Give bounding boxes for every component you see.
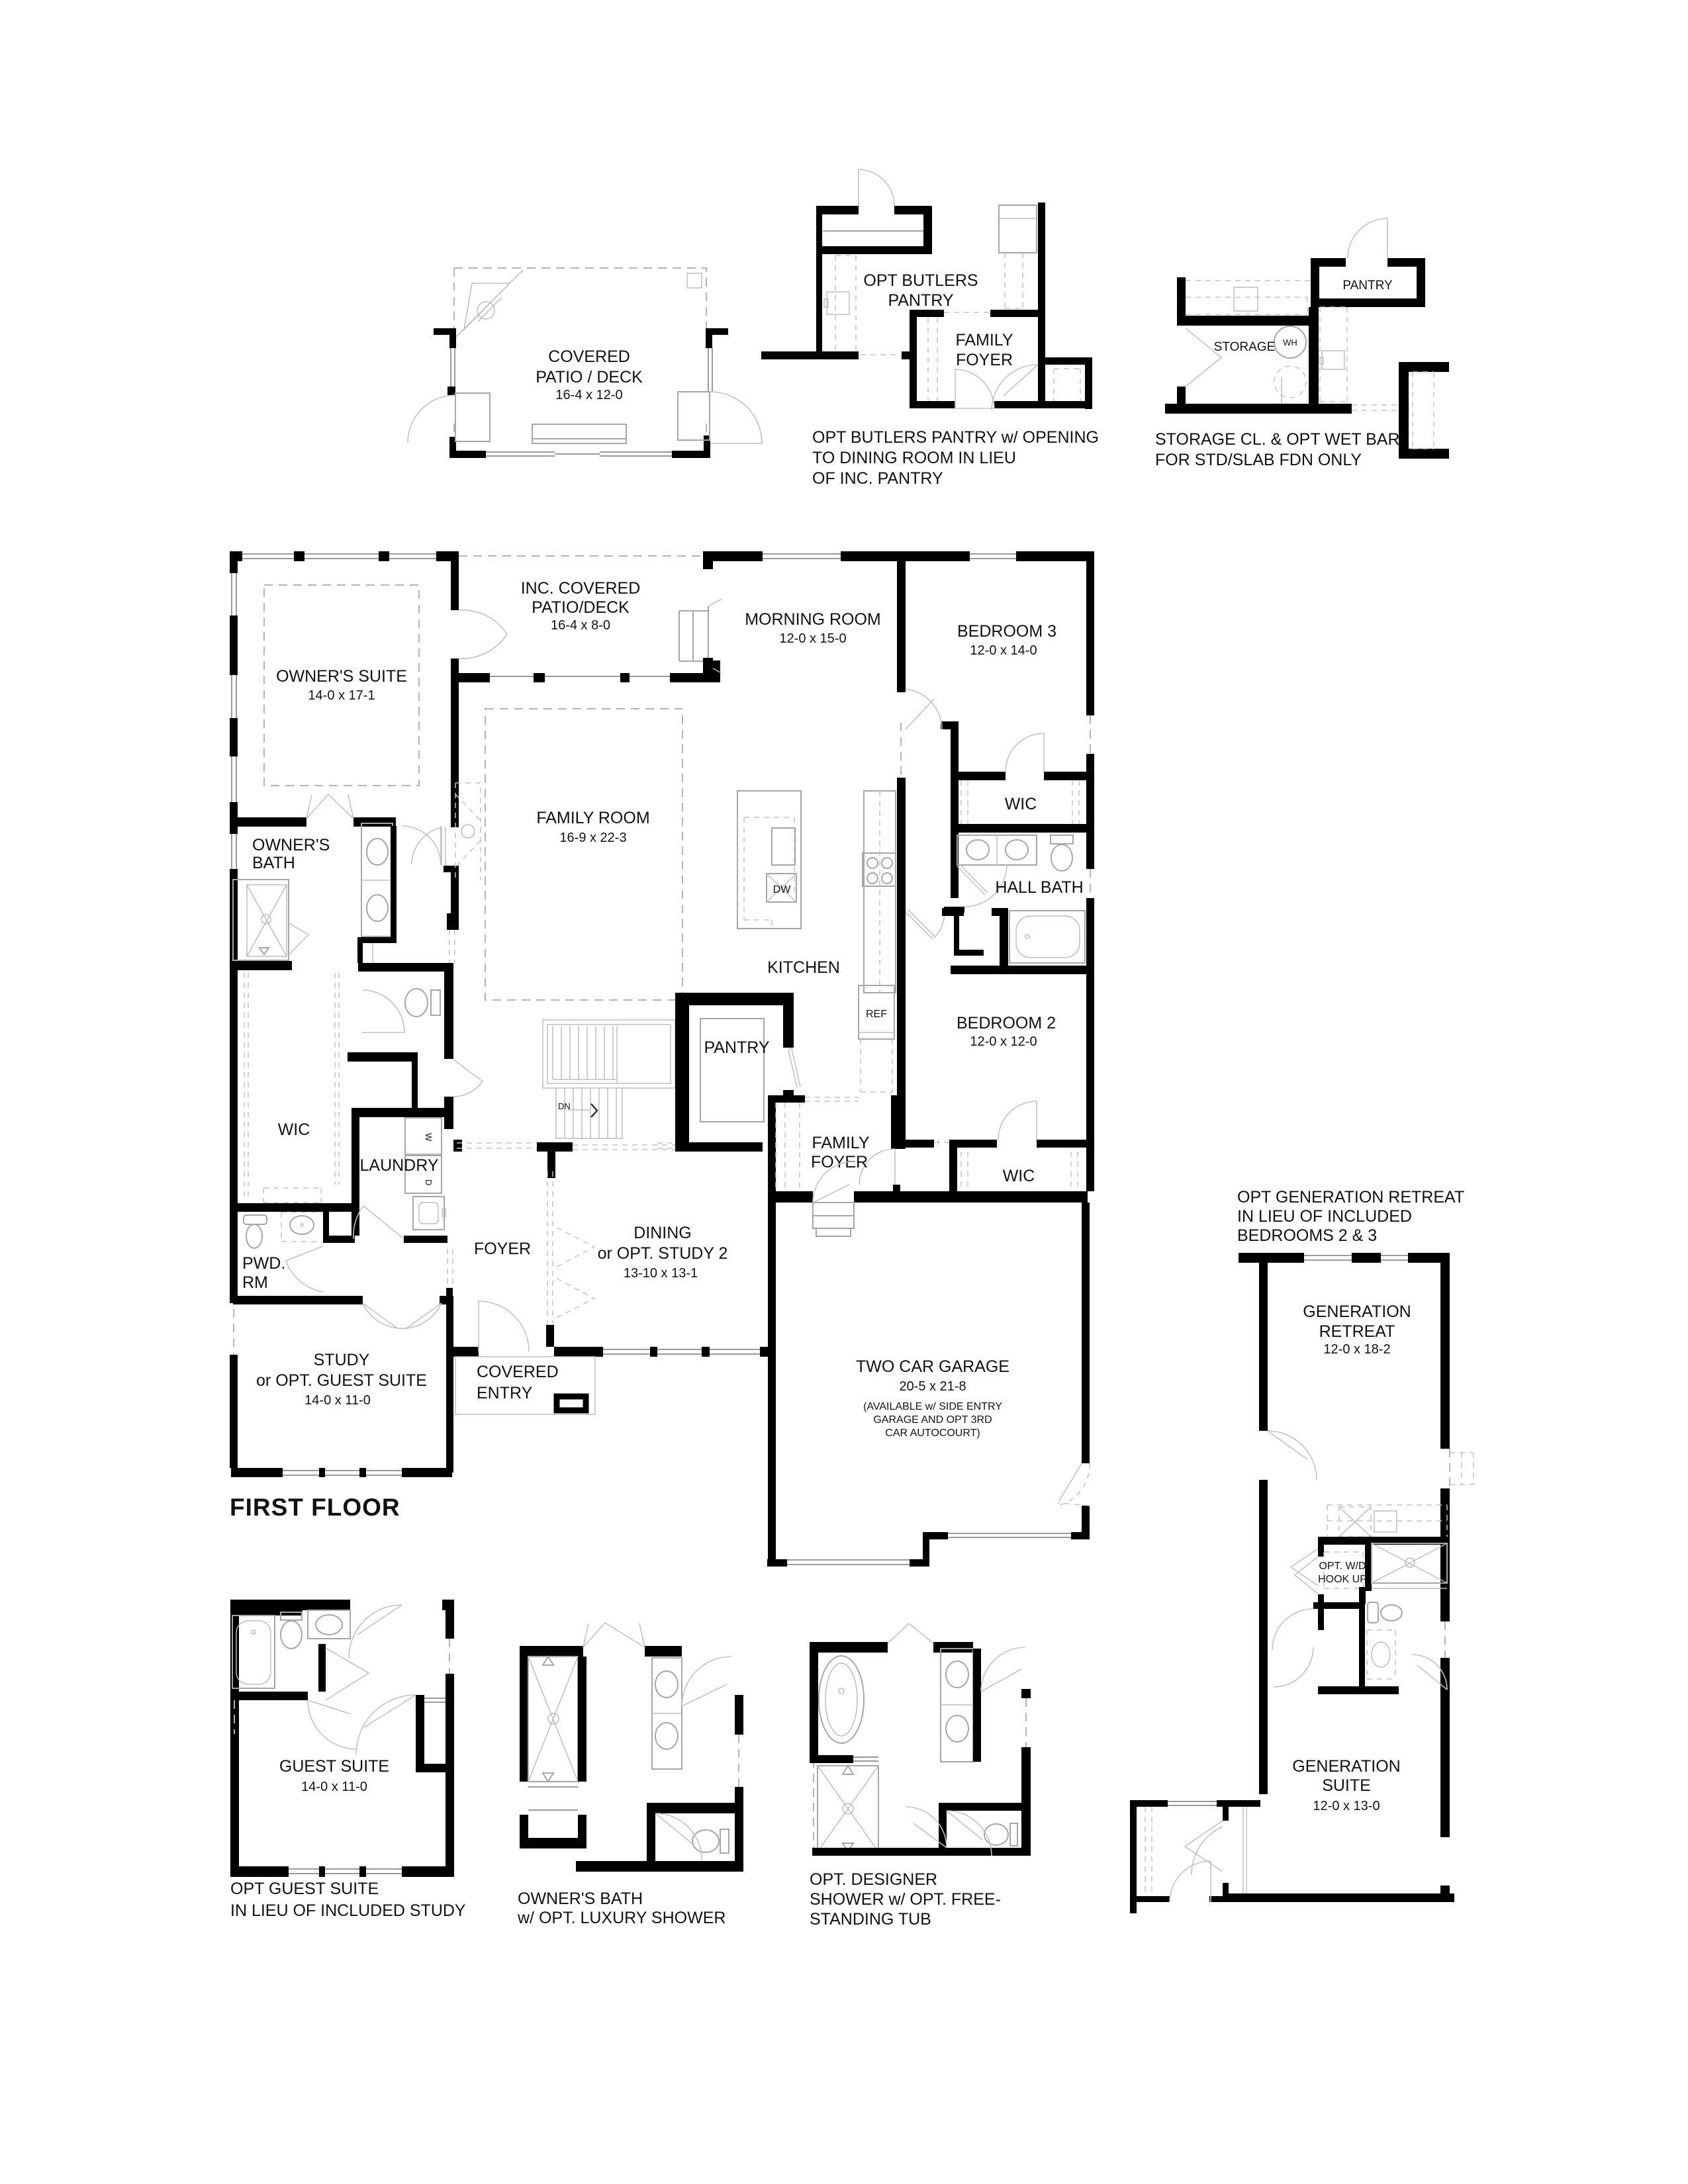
svg-text:STORAGE: STORAGE [1214,340,1276,354]
svg-text:PANTRY: PANTRY [888,291,953,310]
svg-text:ENTRY: ENTRY [477,1384,533,1402]
svg-text:BATH: BATH [252,854,295,872]
svg-text:13-10 x 13-1: 13-10 x 13-1 [624,1266,698,1281]
svg-text:WIC: WIC [278,1120,310,1139]
svg-text:PATIO / DECK: PATIO / DECK [536,368,643,387]
svg-text:PWD.: PWD. [242,1254,285,1273]
svg-text:GUEST SUITE: GUEST SUITE [279,1757,389,1776]
svg-text:INC. COVERED: INC. COVERED [521,579,641,598]
svg-text:(AVAILABLE w/ SIDE ENTRY: (AVAILABLE w/ SIDE ENTRY [863,1401,1002,1412]
svg-text:20-5 x 21-8: 20-5 x 21-8 [899,1379,966,1394]
svg-text:D: D [424,1179,434,1185]
svg-text:DW: DW [773,884,792,895]
svg-text:WIC: WIC [1005,795,1037,813]
svg-text:FAMILY: FAMILY [955,331,1013,349]
svg-text:16-9 x 22-3: 16-9 x 22-3 [559,831,626,845]
svg-text:W: W [424,1133,434,1142]
svg-text:OF INC. PANTRY: OF INC. PANTRY [812,469,943,488]
svg-text:STORAGE CL. & OPT WET BAR: STORAGE CL. & OPT WET BAR [1155,430,1400,449]
svg-text:or OPT. STUDY 2: or OPT. STUDY 2 [598,1244,728,1263]
svg-text:14-0 x 11-0: 14-0 x 11-0 [301,1780,367,1794]
svg-text:14-0 x 11-0: 14-0 x 11-0 [305,1393,371,1408]
svg-text:STUDY: STUDY [314,1351,370,1369]
svg-text:WH: WH [1283,338,1297,347]
svg-text:12-0 x 14-0: 12-0 x 14-0 [970,643,1037,658]
svg-text:GENERATION: GENERATION [1292,1757,1400,1776]
svg-text:OWNER'S: OWNER'S [252,836,330,854]
svg-text:OPT GUEST SUITE: OPT GUEST SUITE [230,1880,379,1898]
svg-text:LAUNDRY: LAUNDRY [359,1156,438,1175]
svg-text:HOOK UP: HOOK UP [1318,1574,1367,1585]
svg-text:14-0 x 17-1: 14-0 x 17-1 [308,688,375,703]
svg-text:SUITE: SUITE [1322,1776,1371,1795]
svg-text:FOR STD/SLAB FDN ONLY: FOR STD/SLAB FDN ONLY [1155,451,1362,469]
svg-text:WIC: WIC [1003,1167,1035,1185]
svg-text:IN LIEU OF INCLUDED: IN LIEU OF INCLUDED [1237,1207,1412,1226]
svg-text:STANDING TUB: STANDING TUB [810,1910,931,1929]
svg-text:TWO CAR GARAGE: TWO CAR GARAGE [856,1357,1009,1376]
svg-text:DINING: DINING [633,1224,692,1242]
svg-text:OPT BUTLERS: OPT BUTLERS [863,271,978,290]
svg-text:KITCHEN: KITCHEN [767,958,840,977]
svg-text:RETREAT: RETREAT [1319,1322,1395,1341]
svg-text:or OPT. GUEST SUITE: or OPT. GUEST SUITE [256,1371,427,1390]
svg-text:FIRST FLOOR: FIRST FLOOR [230,1494,400,1521]
svg-text:OPT. W/D: OPT. W/D [1319,1561,1366,1572]
svg-text:RM: RM [242,1273,268,1292]
svg-text:OWNER'S SUITE: OWNER'S SUITE [276,667,407,686]
svg-text:GARAGE AND OPT 3RD: GARAGE AND OPT 3RD [873,1414,992,1426]
svg-text:OPT BUTLERS PANTRY w/ OPENING: OPT BUTLERS PANTRY w/ OPENING [812,428,1099,447]
svg-text:PANTRY: PANTRY [704,1038,769,1057]
svg-text:BEDROOM 3: BEDROOM 3 [957,622,1056,641]
svg-text:GENERATION: GENERATION [1303,1302,1411,1321]
svg-text:PANTRY: PANTRY [1342,279,1393,293]
svg-text:OWNER'S BATH: OWNER'S BATH [518,1889,643,1908]
svg-text:FAMILY: FAMILY [812,1134,869,1152]
svg-text:w/ OPT. LUXURY SHOWER: w/ OPT. LUXURY SHOWER [517,1909,726,1927]
svg-text:12-0 x 15-0: 12-0 x 15-0 [779,631,846,646]
svg-text:16-4 x 8-0: 16-4 x 8-0 [551,618,610,633]
svg-text:PATIO/DECK: PATIO/DECK [532,598,630,617]
svg-text:OPT. DESIGNER: OPT. DESIGNER [810,1870,937,1889]
svg-text:TO DINING ROOM IN LIEU: TO DINING ROOM IN LIEU [812,449,1016,467]
svg-text:COVERED: COVERED [548,347,630,366]
svg-text:FOYER: FOYER [474,1240,531,1258]
svg-text:FAMILY ROOM: FAMILY ROOM [536,809,649,827]
svg-text:12-0 x 18-2: 12-0 x 18-2 [1323,1342,1390,1357]
svg-text:SHOWER w/ OPT. FREE-: SHOWER w/ OPT. FREE- [810,1890,1001,1909]
svg-text:12-0 x 12-0: 12-0 x 12-0 [970,1034,1037,1049]
svg-text:COVERED: COVERED [477,1363,559,1381]
svg-text:BEDROOM 2: BEDROOM 2 [957,1014,1056,1032]
svg-text:BEDROOMS 2 & 3: BEDROOMS 2 & 3 [1237,1226,1377,1245]
svg-text:FOYER: FOYER [956,351,1013,369]
svg-text:MORNING ROOM: MORNING ROOM [745,610,881,629]
svg-text:FOYER: FOYER [811,1153,868,1171]
svg-text:REF: REF [866,1009,887,1020]
svg-text:16-4 x 12-0: 16-4 x 12-0 [555,388,622,402]
svg-text:12-0 x 13-0: 12-0 x 13-0 [1313,1799,1380,1813]
svg-text:OPT GENERATION RETREAT: OPT GENERATION RETREAT [1237,1188,1464,1206]
svg-text:CAR AUTOCOURT): CAR AUTOCOURT) [885,1428,980,1439]
svg-text:HALL BATH: HALL BATH [995,878,1083,897]
svg-text:IN LIEU OF INCLUDED STUDY: IN LIEU OF INCLUDED STUDY [230,1901,466,1920]
